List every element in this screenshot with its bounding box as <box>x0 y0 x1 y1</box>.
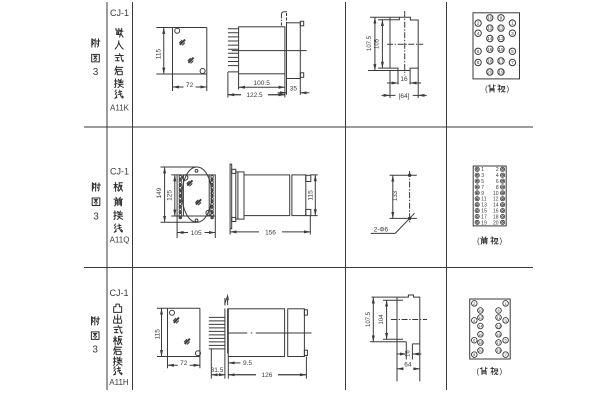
svg-text:5: 5 <box>511 49 514 55</box>
svg-text:115: 115 <box>154 329 161 340</box>
svg-text:): ) <box>500 367 503 376</box>
svg-text:3: 3 <box>93 67 99 78</box>
svg-text:A11Q: A11Q <box>110 236 130 245</box>
svg-text:20: 20 <box>478 348 483 353</box>
svg-text:13: 13 <box>496 324 501 329</box>
svg-text:3: 3 <box>93 211 99 222</box>
svg-text:20: 20 <box>487 70 493 76</box>
svg-text:1: 1 <box>511 21 514 27</box>
svg-text:14: 14 <box>478 324 483 329</box>
svg-text:CJ-1: CJ-1 <box>110 166 129 176</box>
svg-text:(: ( <box>477 367 480 376</box>
svg-text:[64]: [64] <box>399 93 410 100</box>
svg-text:107.5: 107.5 <box>366 311 372 327</box>
svg-text:18: 18 <box>487 59 493 65</box>
svg-text:4: 4 <box>477 31 480 37</box>
svg-text:8: 8 <box>477 60 480 66</box>
svg-text:16: 16 <box>400 76 408 83</box>
svg-text:20: 20 <box>493 220 499 226</box>
svg-text:15: 15 <box>496 332 501 337</box>
svg-text:19: 19 <box>496 348 501 353</box>
svg-text:A11H: A11H <box>109 378 129 387</box>
svg-text:3: 3 <box>511 31 514 37</box>
svg-text:12: 12 <box>478 315 483 320</box>
svg-text:6: 6 <box>477 49 480 55</box>
svg-text:64: 64 <box>404 362 412 369</box>
svg-text:19: 19 <box>481 220 487 226</box>
svg-text:16: 16 <box>487 47 493 53</box>
svg-text:35: 35 <box>290 85 298 92</box>
svg-text:10: 10 <box>478 308 483 313</box>
svg-text:9: 9 <box>500 15 503 21</box>
svg-text:17: 17 <box>496 340 501 345</box>
svg-text:18: 18 <box>478 340 483 345</box>
svg-text:2: 2 <box>477 21 480 27</box>
svg-text:105: 105 <box>191 230 202 237</box>
svg-text:16: 16 <box>405 350 411 357</box>
svg-text:A11K: A11K <box>110 104 130 113</box>
svg-text:(: ( <box>477 237 480 246</box>
svg-text:122.5: 122.5 <box>246 92 263 99</box>
svg-text:107.5: 107.5 <box>367 35 373 51</box>
svg-text:3: 3 <box>92 345 98 356</box>
svg-text:7: 7 <box>511 60 514 66</box>
svg-text:14: 14 <box>487 36 493 42</box>
svg-text:19: 19 <box>498 70 504 76</box>
svg-text:100.5: 100.5 <box>254 80 271 87</box>
svg-text:11: 11 <box>499 26 504 32</box>
svg-text:115: 115 <box>308 190 315 201</box>
svg-text:): ) <box>507 85 510 94</box>
svg-text:125: 125 <box>166 190 173 201</box>
svg-text:72: 72 <box>180 360 188 367</box>
svg-text:149: 149 <box>156 187 163 198</box>
svg-text:): ) <box>500 237 503 246</box>
svg-text:16: 16 <box>478 332 483 337</box>
svg-text:CJ-1: CJ-1 <box>109 288 128 298</box>
svg-text:13: 13 <box>498 36 504 42</box>
svg-text:17: 17 <box>498 59 504 65</box>
svg-text:12: 12 <box>487 26 493 32</box>
svg-text:105: 105 <box>375 38 381 49</box>
svg-text:133: 133 <box>393 190 399 201</box>
svg-text:2-Φ6: 2-Φ6 <box>374 227 389 234</box>
svg-text:15: 15 <box>498 47 504 53</box>
svg-text:104: 104 <box>379 314 385 325</box>
svg-text:156: 156 <box>265 229 276 236</box>
svg-text:126: 126 <box>261 372 272 379</box>
svg-text:31.5: 31.5 <box>211 367 224 374</box>
svg-text:(: ( <box>485 85 488 94</box>
svg-text:CJ-1: CJ-1 <box>110 8 129 18</box>
svg-text:9.5: 9.5 <box>243 360 252 367</box>
svg-text:10: 10 <box>487 15 493 21</box>
svg-text:72: 72 <box>186 82 194 89</box>
svg-text:115: 115 <box>155 48 162 59</box>
